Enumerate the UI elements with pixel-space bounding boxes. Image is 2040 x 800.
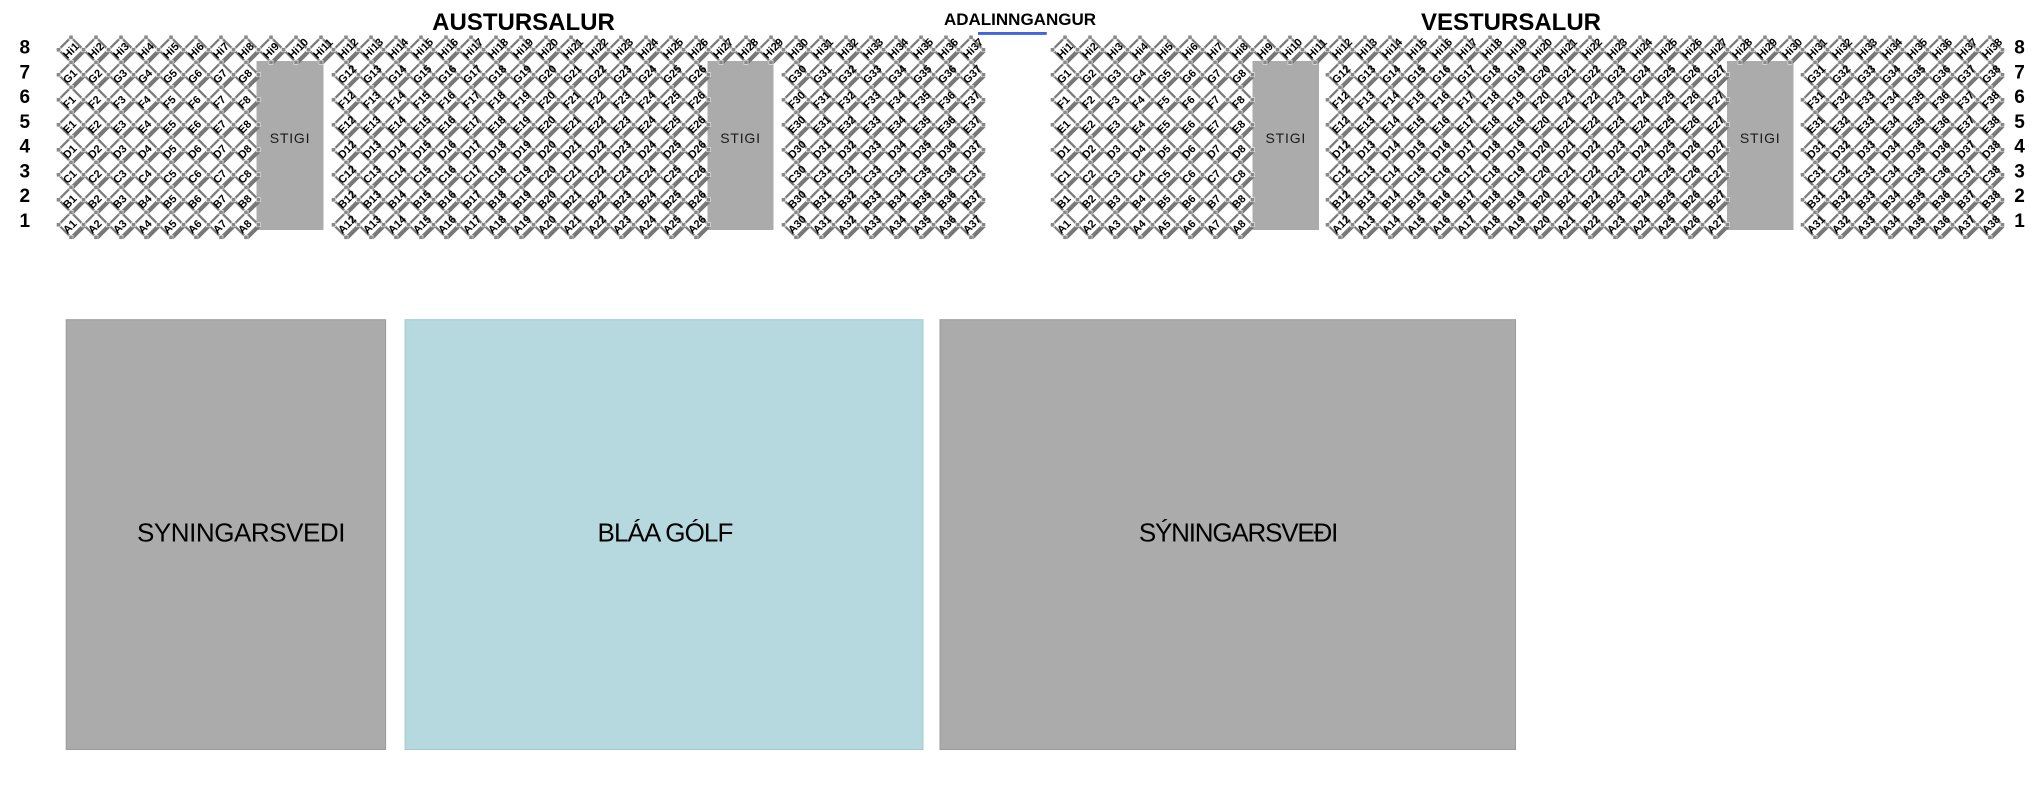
svg-text:3: 3 xyxy=(20,161,31,182)
svg-text:SÝNINGARSVEÐI: SÝNINGARSVEÐI xyxy=(1139,518,1337,548)
svg-text:VESTURSALUR: VESTURSALUR xyxy=(1421,9,1601,36)
svg-text:STIGI: STIGI xyxy=(720,130,761,146)
svg-text:STIGI: STIGI xyxy=(1740,130,1781,146)
svg-text:4: 4 xyxy=(20,137,31,158)
svg-text:1: 1 xyxy=(20,211,31,232)
svg-text:1: 1 xyxy=(2014,211,2025,232)
svg-text:5: 5 xyxy=(2014,112,2025,133)
svg-text:6: 6 xyxy=(2014,87,2025,108)
svg-text:STIGI: STIGI xyxy=(270,130,311,146)
svg-text:BLÁA GÓLF: BLÁA GÓLF xyxy=(598,518,733,548)
svg-text:AUSTURSALUR: AUSTURSALUR xyxy=(432,9,615,36)
svg-text:6: 6 xyxy=(20,87,31,108)
svg-text:3: 3 xyxy=(2014,161,2025,182)
svg-text:SYNINGARSVEDI: SYNINGARSVEDI xyxy=(137,518,345,548)
svg-text:5: 5 xyxy=(20,112,31,133)
svg-text:7: 7 xyxy=(2014,62,2025,83)
svg-text:8: 8 xyxy=(20,38,31,59)
svg-text:2: 2 xyxy=(2014,186,2025,207)
svg-text:4: 4 xyxy=(2014,137,2025,158)
svg-text:8: 8 xyxy=(2014,38,2025,59)
svg-text:7: 7 xyxy=(20,62,31,83)
svg-text:STIGI: STIGI xyxy=(1266,130,1307,146)
svg-text:2: 2 xyxy=(20,186,31,207)
svg-text:ADALINNGANGUR: ADALINNGANGUR xyxy=(944,10,1096,29)
